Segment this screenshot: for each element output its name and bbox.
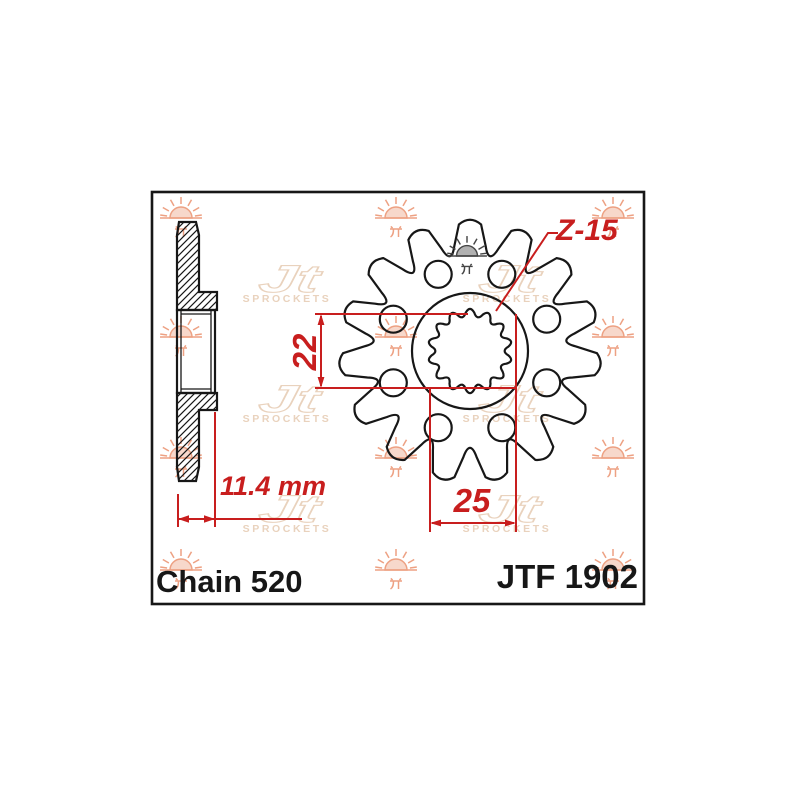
chain-size-label: Chain 520 [156, 566, 302, 597]
section-bore-box [177, 310, 215, 393]
dim-22-label: 22 [288, 330, 318, 374]
relief-hole [425, 414, 452, 441]
watermark-layer [160, 197, 634, 589]
drawing-border [152, 192, 644, 604]
drawing-canvas: Jt SPROCKETS [0, 0, 800, 800]
teeth-count-label: Z-15 [556, 216, 618, 246]
section-lower-body [177, 393, 217, 481]
sprocket-technical-drawing: Jt SPROCKETS [0, 0, 800, 800]
relief-hole [380, 369, 407, 396]
part-number-label: JTF 1902 [488, 560, 638, 593]
sprocket-front-view [339, 220, 600, 480]
relief-hole [533, 306, 560, 333]
relief-hole [425, 261, 452, 288]
dim-25-label: 25 [443, 484, 501, 517]
dim-hub-width-label: 11.4 mm [220, 473, 326, 500]
section-upper-body [177, 222, 217, 310]
sprocket-teeth-outline [339, 220, 600, 480]
